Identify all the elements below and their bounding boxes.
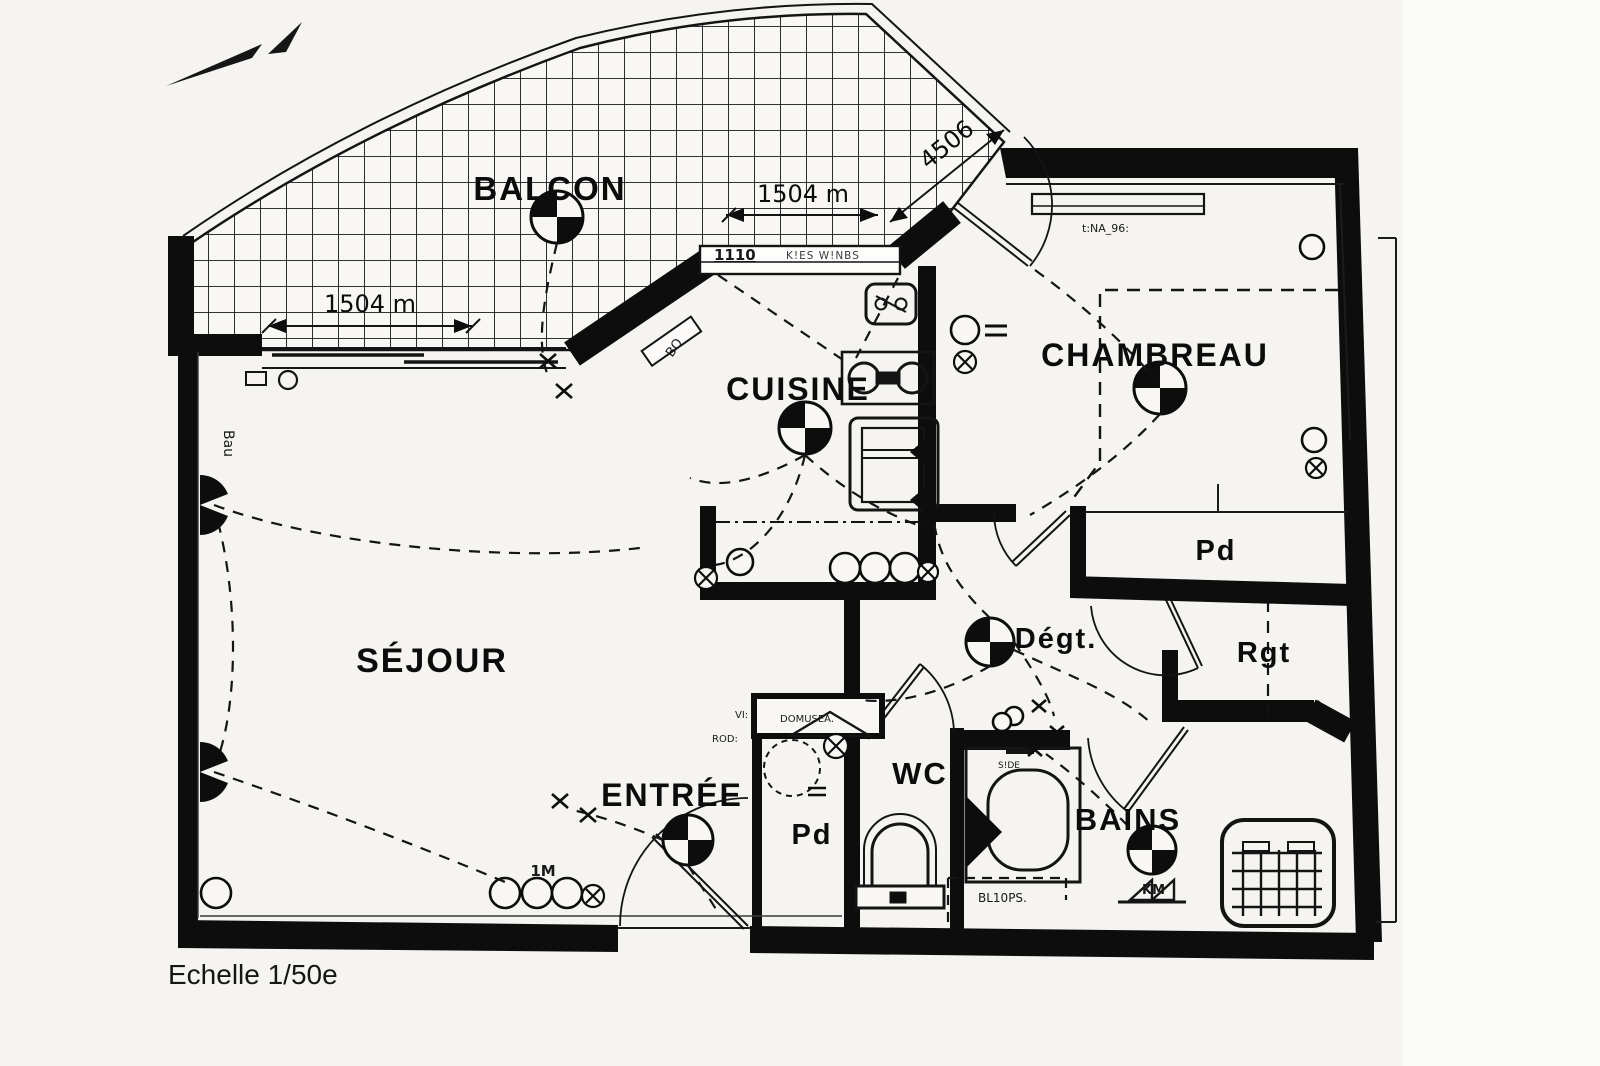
floor-plan-svg: 1110 K!ES W!NBS BO bbox=[0, 0, 1600, 1066]
wall-bottom-left bbox=[178, 920, 618, 952]
room-label-placard-chambre: Pd bbox=[1195, 535, 1236, 567]
outlet-group-label: 1M bbox=[530, 862, 555, 880]
wall-cuisine-low-horizontal bbox=[700, 582, 936, 600]
kitchen-window-dim: 1110 bbox=[714, 246, 756, 264]
wall-degt-chambre bbox=[934, 504, 1016, 522]
dimension-kitchen-front-label: 1504 m bbox=[757, 180, 849, 208]
chambre-shelf-note: t:NA_96: bbox=[1082, 222, 1129, 235]
entree-closet-label: DOMUSEA. bbox=[780, 714, 834, 725]
room-label-entree: ENTRÉE bbox=[601, 777, 743, 813]
room-label-placard-entree: Pd bbox=[791, 819, 832, 851]
entree-closet: DOMUSEA. bbox=[754, 696, 882, 736]
wall-wc-bains bbox=[950, 728, 964, 930]
room-label-balcon: BALCON bbox=[473, 170, 626, 207]
wall-placard-entree bbox=[752, 726, 762, 930]
switch-icon bbox=[824, 734, 848, 758]
room-label-chambre: CHAMBREAU bbox=[1041, 337, 1269, 373]
room-label-bains: BAINS bbox=[1075, 802, 1181, 837]
washbasin-note: S!DE bbox=[998, 761, 1020, 771]
room-label-degt: Dégt. bbox=[1015, 623, 1098, 655]
room-label-rangement: Rgt bbox=[1237, 637, 1291, 669]
switch-icon bbox=[1306, 458, 1326, 478]
room-label-wc: WC bbox=[892, 756, 948, 791]
switch-icon bbox=[954, 351, 976, 373]
vent-label: KM bbox=[1142, 883, 1165, 898]
ceiling-light-icon-degt bbox=[966, 618, 1014, 666]
entree-vi-note: VI: bbox=[735, 710, 748, 721]
switch-icon bbox=[918, 562, 938, 582]
ceiling-light-icon-cuisine bbox=[779, 402, 831, 454]
room-label-sejour: SÉJOUR bbox=[356, 642, 508, 680]
wall-balcony-left-stub bbox=[168, 236, 194, 350]
wall-left bbox=[178, 348, 198, 924]
entree-rod-note: ROD: bbox=[712, 734, 738, 745]
dimension-balcony-label: 1504 m bbox=[324, 290, 416, 318]
floor-plan-page: 1110 K!ES W!NBS BO bbox=[0, 0, 1600, 1066]
wall-entree-wc bbox=[844, 598, 860, 930]
room-label-cuisine: CUISINE bbox=[726, 371, 870, 407]
kitchen-window: 1110 K!ES W!NBS bbox=[700, 246, 900, 274]
wall-bau-label: Bau bbox=[220, 430, 236, 457]
paper-margin-right bbox=[1402, 0, 1600, 1066]
bains-note-label: BL10PS. bbox=[978, 891, 1027, 905]
wall-rangement-bottom bbox=[1178, 700, 1314, 722]
wall-rangement-left bbox=[1162, 650, 1178, 722]
ceiling-light-icon-entree bbox=[663, 815, 713, 865]
switch-icon bbox=[582, 885, 604, 907]
switch-icon bbox=[695, 567, 717, 589]
kitchen-window-note: K!ES W!NBS bbox=[786, 250, 860, 262]
scale-label: Echelle 1/50e bbox=[168, 959, 338, 990]
wall-top-chambre bbox=[1000, 148, 1358, 178]
